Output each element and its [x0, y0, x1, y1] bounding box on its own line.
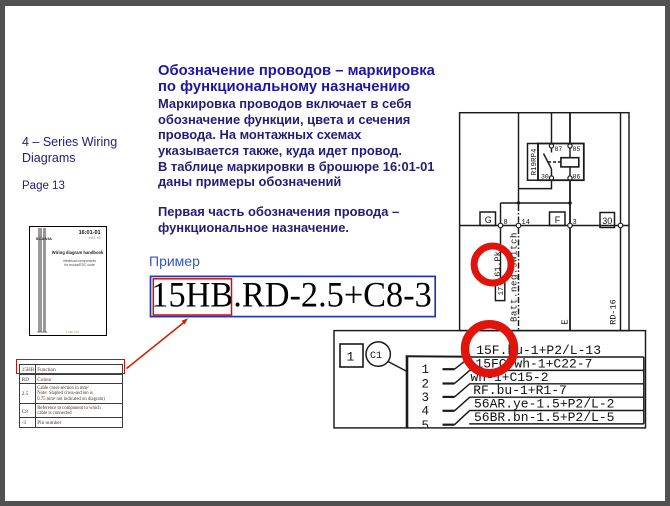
svg-text:3: 3	[422, 391, 430, 405]
svg-text:15HB.RD-2.5+C8-3: 15HB.RD-2.5+C8-3	[151, 275, 432, 315]
svg-text:30: 30	[602, 216, 612, 226]
svg-text:87: 87	[555, 146, 563, 153]
svg-text:1: 1	[422, 363, 430, 377]
svg-text:85: 85	[573, 146, 581, 153]
svg-text:Batt.neg.switch: Batt.neg.switch	[510, 232, 520, 322]
svg-text:30: 30	[541, 174, 549, 181]
svg-text:2: 2	[422, 377, 430, 391]
svg-text:G: G	[485, 215, 492, 225]
svg-text:R19RP4: R19RP4	[531, 148, 539, 176]
svg-text:3: 3	[573, 219, 577, 227]
svg-text:RD-16: RD-16	[609, 299, 619, 325]
svg-text:C1: C1	[370, 351, 382, 362]
svg-text:1: 1	[347, 350, 355, 365]
svg-text:86: 86	[573, 174, 581, 181]
svg-text:5: 5	[422, 419, 430, 433]
svg-text:17: 17	[498, 287, 506, 295]
svg-text:4: 4	[422, 404, 430, 418]
svg-text:14: 14	[522, 219, 530, 227]
svg-text:61.Pk: 61.Pk	[493, 251, 503, 277]
svg-text:8: 8	[504, 219, 508, 227]
svg-text:56BR.bn-1.5+P2/L-5: 56BR.bn-1.5+P2/L-5	[474, 410, 614, 425]
svg-text:E: E	[561, 319, 571, 324]
svg-text:F: F	[555, 215, 561, 225]
